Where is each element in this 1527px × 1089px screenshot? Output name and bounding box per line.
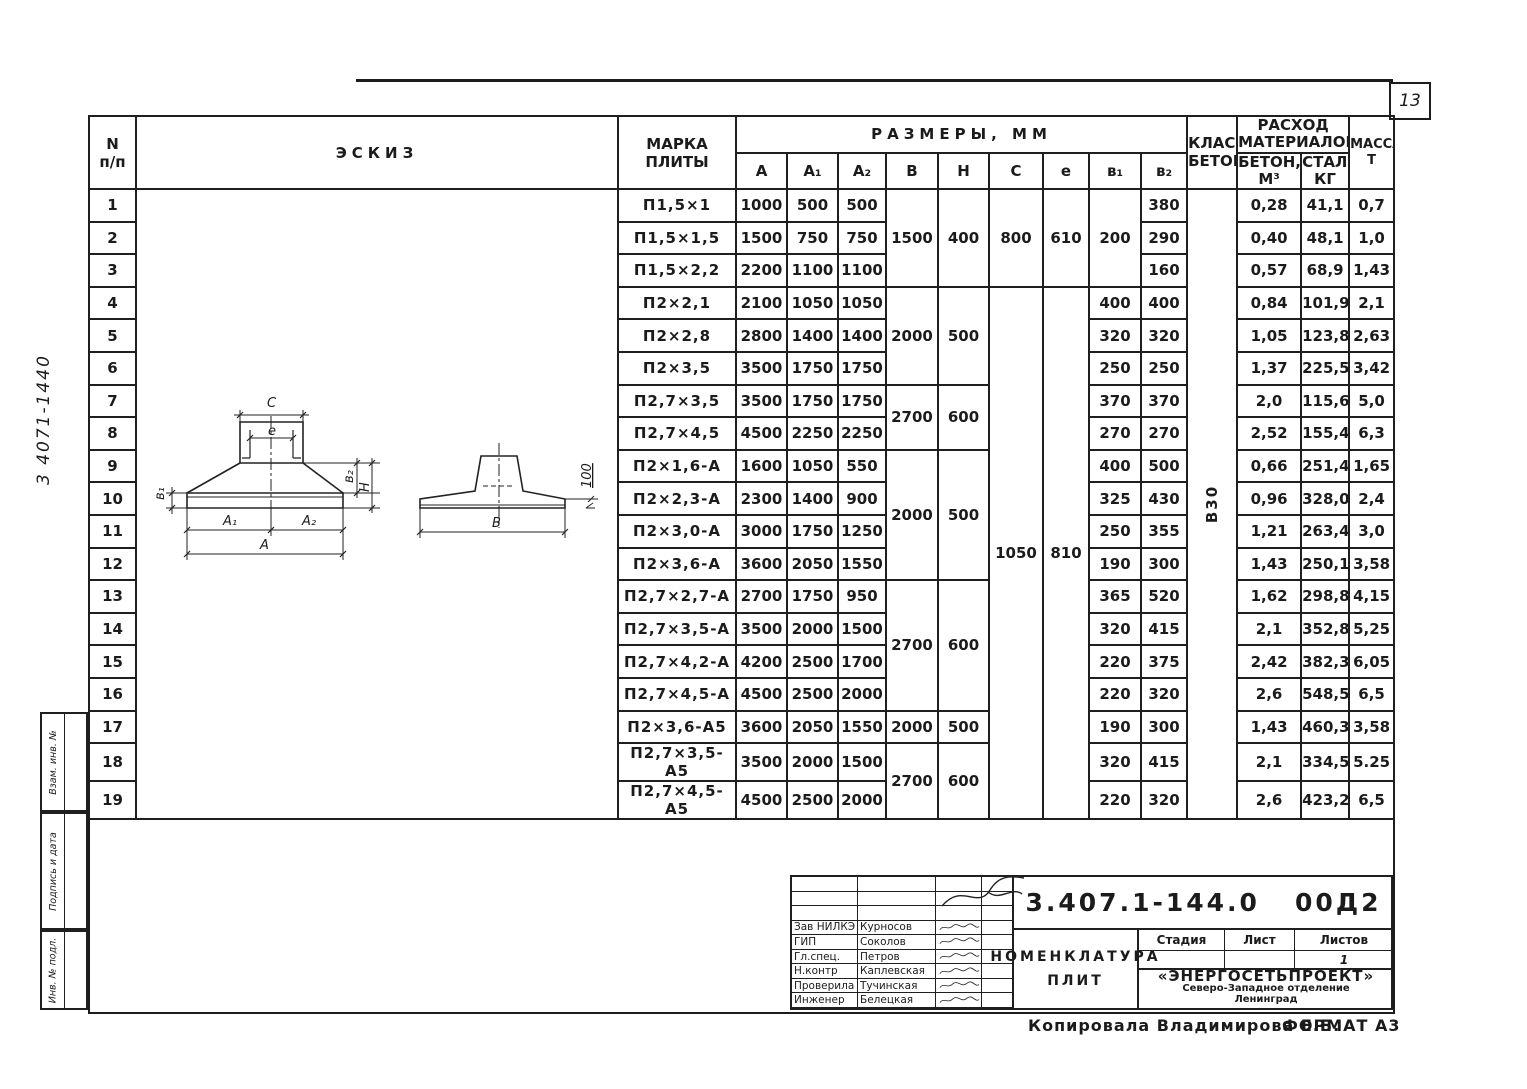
- row-13-steel: 298,8: [1301, 580, 1349, 613]
- row-12-dim-A1: 2050: [787, 548, 838, 581]
- dim-label-A1: A₁: [222, 514, 237, 529]
- row-15-steel: 382,3: [1301, 645, 1349, 678]
- row-8-mass: 6,3: [1349, 417, 1394, 450]
- mark-header-line1: МАРКА: [619, 135, 735, 153]
- row-13-mass: 4,15: [1349, 580, 1394, 613]
- row-19-number: 19: [89, 781, 136, 819]
- row-14-concrete: 2,1: [1237, 613, 1301, 646]
- row-4-dim-B2: 400: [1141, 287, 1187, 320]
- sheet-title-line1: НОМЕНКЛАТУРА: [990, 949, 1160, 965]
- row-9-mark: П2×1,6-А: [618, 450, 736, 483]
- row-14-number: 14: [89, 613, 136, 646]
- row-15-dim-A: 4200: [736, 645, 787, 678]
- row-18-number: 18: [89, 743, 136, 781]
- row-5-steel: 123,8: [1301, 319, 1349, 352]
- row-17-dim-A1: 2050: [787, 711, 838, 744]
- num-header-line1: N: [90, 135, 135, 153]
- row-4-dim-e: 810: [1043, 287, 1089, 819]
- row-3-dim-A2: 1100: [838, 254, 886, 287]
- signature-row-1: ГИПСоколов: [792, 935, 1012, 950]
- stamp-label: Подпись и дата: [48, 832, 59, 911]
- row-8-number: 8: [89, 417, 136, 450]
- row-16-number: 16: [89, 678, 136, 711]
- row-16-dim-B1: 220: [1089, 678, 1141, 711]
- stamp-label: Взам. инв. №: [48, 730, 59, 795]
- sheets-value: 1: [1295, 951, 1393, 968]
- org-city: Ленинград: [1234, 995, 1297, 1006]
- row-17-dim-B2: 300: [1141, 711, 1187, 744]
- row-9-concrete: 0,66: [1237, 450, 1301, 483]
- role-cell: Проверила: [792, 979, 858, 994]
- concrete-class-cell: В30: [1187, 189, 1237, 819]
- row-1-mark: П1,5×1: [618, 189, 736, 222]
- row-11-steel: 263,4: [1301, 515, 1349, 548]
- row-17-steel: 460,3: [1301, 711, 1349, 744]
- side-view-outline: [420, 456, 565, 508]
- row-2-steel: 48,1: [1301, 222, 1349, 255]
- row-4-dim-B1: 400: [1089, 287, 1141, 320]
- name-cell: Петров: [858, 950, 936, 965]
- row-8-mark: П2,7×4,5: [618, 417, 736, 450]
- col-header-concrete: БЕТОН, М³: [1237, 153, 1301, 190]
- row-5-mass: 2,63: [1349, 319, 1394, 352]
- margin-handwritten-code: 3 4071-1440: [34, 354, 54, 485]
- row-15-dim-B1: 220: [1089, 645, 1141, 678]
- row-5-number: 5: [89, 319, 136, 352]
- row-18-mass: 5.25: [1349, 743, 1394, 781]
- row-14-dim-B2: 415: [1141, 613, 1187, 646]
- row-9-dim-B1: 400: [1089, 450, 1141, 483]
- signature-row-4: ПроверилаТучинская: [792, 979, 1012, 994]
- row-16-dim-A: 4500: [736, 678, 787, 711]
- row-19-dim-A2: 2000: [838, 781, 886, 819]
- row-1-dim-H: 400: [938, 189, 989, 287]
- row-18-steel: 334,5: [1301, 743, 1349, 781]
- row-19-steel: 423,2: [1301, 781, 1349, 819]
- col-header-B: B: [886, 153, 938, 190]
- row-6-dim-A: 3500: [736, 352, 787, 385]
- col-header-H: H: [938, 153, 989, 190]
- row-1-number: 1: [89, 189, 136, 222]
- row-15-dim-A2: 1700: [838, 645, 886, 678]
- row-8-dim-A1: 2250: [787, 417, 838, 450]
- row-16-concrete: 2,6: [1237, 678, 1301, 711]
- name-cell: [858, 892, 936, 907]
- row-4-dim-C: 1050: [989, 287, 1043, 819]
- row-2-dim-A2: 750: [838, 222, 886, 255]
- row-16-dim-B2: 320: [1141, 678, 1187, 711]
- row-6-mass: 3,42: [1349, 352, 1394, 385]
- row-4-mass: 2,1: [1349, 287, 1394, 320]
- row-13-dim-A: 2700: [736, 580, 787, 613]
- date-cell: [982, 993, 1012, 1008]
- row-1-dim-B1: 200: [1089, 189, 1141, 287]
- row-7-dim-B: 2700: [886, 385, 938, 450]
- role-cell: Инженер: [792, 993, 858, 1008]
- row-7-mark: П2,7×3,5: [618, 385, 736, 418]
- name-cell: [858, 906, 936, 921]
- row-10-mass: 2,4: [1349, 482, 1394, 515]
- haunch-slopes: [187, 463, 343, 493]
- row-7-dim-A: 3500: [736, 385, 787, 418]
- row-8-dim-B2: 270: [1141, 417, 1187, 450]
- row-2-concrete: 0,40: [1237, 222, 1301, 255]
- row-15-dim-B2: 375: [1141, 645, 1187, 678]
- row-8-dim-A2: 2250: [838, 417, 886, 450]
- row-17-mark: П2×3,6-А5: [618, 711, 736, 744]
- row-7-dim-B1: 370: [1089, 385, 1141, 418]
- role-cell: Н.контр: [792, 964, 858, 979]
- mark-header-line2: ПЛИТЫ: [619, 153, 735, 171]
- row-6-dim-A1: 1750: [787, 352, 838, 385]
- row-9-dim-H: 500: [938, 450, 989, 580]
- materials-header-line2: МАТЕРИАЛОВ: [1238, 134, 1348, 151]
- col-header-sketch: ЭСКИЗ: [136, 116, 618, 189]
- row-14-dim-A2: 1500: [838, 613, 886, 646]
- row-14-steel: 352,8: [1301, 613, 1349, 646]
- row-10-concrete: 0,96: [1237, 482, 1301, 515]
- plate-sketch: C e в₁ в₂ H A₁ A₂ A B 100: [150, 388, 620, 588]
- row-4-dim-A1: 1050: [787, 287, 838, 320]
- row-11-dim-A: 3000: [736, 515, 787, 548]
- drawing-sheet: 13 3 4071-1440 Взам. инв. № Подпись и да…: [0, 0, 1527, 1089]
- date-cell: [982, 921, 1012, 936]
- row-19-mark: П2,7×4,5-А5: [618, 781, 736, 819]
- stamp-label-box: Взам. инв. №: [42, 714, 65, 810]
- row-17-dim-B1: 190: [1089, 711, 1141, 744]
- col-header-steel: СТАЛЬ, КГ: [1301, 153, 1349, 190]
- row-3-dim-A1: 1100: [787, 254, 838, 287]
- stamp-inv-podl: Инв. № подл.: [40, 930, 88, 1010]
- row-18-dim-H: 600: [938, 743, 989, 819]
- mass-header-line1: МАССА,: [1350, 137, 1393, 153]
- row-7-dim-A2: 1750: [838, 385, 886, 418]
- row-19-concrete: 2,6: [1237, 781, 1301, 819]
- row-12-dim-B2: 300: [1141, 548, 1187, 581]
- row-10-dim-B2: 430: [1141, 482, 1187, 515]
- row-18-dim-B1: 320: [1089, 743, 1141, 781]
- stamp-podpis-data: Подпись и дата: [40, 812, 88, 930]
- row-4-dim-A2: 1050: [838, 287, 886, 320]
- row-5-concrete: 1,05: [1237, 319, 1301, 352]
- signature-row-3: Н.контрКаплевская: [792, 964, 1012, 979]
- row-8-steel: 155,4: [1301, 417, 1349, 450]
- row-13-dim-B: 2700: [886, 580, 938, 710]
- row-17-concrete: 1,43: [1237, 711, 1301, 744]
- row-5-dim-B1: 320: [1089, 319, 1141, 352]
- class-header-line1: КЛАСС: [1188, 135, 1236, 152]
- row-10-number: 10: [89, 482, 136, 515]
- row-1-steel: 41,1: [1301, 189, 1349, 222]
- row-2-dim-B2: 290: [1141, 222, 1187, 255]
- row-1-dim-A2: 500: [838, 189, 886, 222]
- row-11-number: 11: [89, 515, 136, 548]
- row-3-dim-A: 2200: [736, 254, 787, 287]
- row-9-dim-A2: 550: [838, 450, 886, 483]
- row-9-number: 9: [89, 450, 136, 483]
- role-cell: [792, 877, 858, 892]
- signature-cell: [936, 993, 982, 1008]
- date-cell: [982, 935, 1012, 950]
- row-13-concrete: 1,62: [1237, 580, 1301, 613]
- row-18-dim-A2: 1500: [838, 743, 886, 781]
- row-7-concrete: 2,0: [1237, 385, 1301, 418]
- row-4-steel: 101,9: [1301, 287, 1349, 320]
- row-19-dim-A1: 2500: [787, 781, 838, 819]
- row-7-dim-B2: 370: [1141, 385, 1187, 418]
- sheets-label: Листов: [1295, 930, 1393, 950]
- row-11-dim-A1: 1750: [787, 515, 838, 548]
- row-13-dim-A1: 1750: [787, 580, 838, 613]
- row-12-dim-A2: 1550: [838, 548, 886, 581]
- row-1-dim-e: 610: [1043, 189, 1089, 287]
- signature-flourish: [938, 872, 1028, 912]
- row-12-number: 12: [89, 548, 136, 581]
- row-3-mass: 1,43: [1349, 254, 1394, 287]
- stamp-label: Инв. № подл.: [48, 937, 59, 1003]
- row-12-concrete: 1,43: [1237, 548, 1301, 581]
- row-17-mass: 3,58: [1349, 711, 1394, 744]
- row-1-mass: 0,7: [1349, 189, 1394, 222]
- dim-label-A2: A₂: [301, 514, 316, 529]
- title-block: Зав НИЛКЭКурносовГИПСоколовГл.спец.Петро…: [790, 875, 1393, 1010]
- row-11-mass: 3,0: [1349, 515, 1394, 548]
- doc-number: 3.407.1-144.0 00Д2: [1012, 877, 1393, 930]
- row-7-dim-A1: 1750: [787, 385, 838, 418]
- row-5-mark: П2×2,8: [618, 319, 736, 352]
- class-header-line2: БЕТОНА: [1188, 153, 1236, 170]
- row-1-concrete: 0,28: [1237, 189, 1301, 222]
- row-5-dim-A1: 1400: [787, 319, 838, 352]
- row-16-dim-A2: 2000: [838, 678, 886, 711]
- row-15-mass: 6,05: [1349, 645, 1394, 678]
- role-cell: Зав НИЛКЭ: [792, 921, 858, 936]
- dim-label-v1: в₁: [153, 487, 168, 500]
- row-16-steel: 548,5: [1301, 678, 1349, 711]
- name-cell: Белецкая: [858, 993, 936, 1008]
- role-cell: Гл.спец.: [792, 950, 858, 965]
- date-cell: [982, 979, 1012, 994]
- stage-sheet-block: Стадия Лист Листов 1 «ЭНЕРГОСЕТЬПРОЕКТ» …: [1137, 930, 1393, 1008]
- row-10-dim-B1: 325: [1089, 482, 1141, 515]
- row-5-dim-B2: 320: [1141, 319, 1187, 352]
- row-9-dim-B2: 500: [1141, 450, 1187, 483]
- row-9-mass: 1,65: [1349, 450, 1394, 483]
- col-header-mass: МАССА, Т: [1349, 116, 1394, 189]
- row-15-concrete: 2,42: [1237, 645, 1301, 678]
- row-13-dim-B1: 365: [1089, 580, 1141, 613]
- row-12-dim-B1: 190: [1089, 548, 1141, 581]
- sheet-title: НОМЕНКЛАТУРА ПЛИТ: [1012, 930, 1137, 1008]
- row-8-dim-A: 4500: [736, 417, 787, 450]
- signature-cell: [936, 935, 982, 950]
- row-19-dim-B2: 320: [1141, 781, 1187, 819]
- row-7-number: 7: [89, 385, 136, 418]
- row-2-number: 2: [89, 222, 136, 255]
- stamp-label-box: Подпись и дата: [42, 814, 65, 928]
- sheet-value: [1225, 951, 1295, 968]
- row-2-mass: 1,0: [1349, 222, 1394, 255]
- row-2-dim-A1: 750: [787, 222, 838, 255]
- row-11-dim-A2: 1250: [838, 515, 886, 548]
- page-number: 13: [1399, 91, 1421, 111]
- row-19-mass: 6,5: [1349, 781, 1394, 819]
- num-header-line2: п/п: [90, 153, 135, 171]
- row-17-dim-H: 500: [938, 711, 989, 744]
- concrete-header-line1: БЕТОН,: [1238, 154, 1300, 171]
- row-6-mark: П2×3,5: [618, 352, 736, 385]
- signature-cell: [936, 979, 982, 994]
- row-10-steel: 328,0: [1301, 482, 1349, 515]
- row-10-dim-A: 2300: [736, 482, 787, 515]
- col-header-dimensions: РАЗМЕРЫ, ММ: [736, 116, 1187, 153]
- stage-label: Стадия: [1139, 930, 1225, 950]
- row-18-dim-B2: 415: [1141, 743, 1187, 781]
- row-2-dim-A: 1500: [736, 222, 787, 255]
- row-18-dim-A1: 2000: [787, 743, 838, 781]
- row-18-dim-A: 3500: [736, 743, 787, 781]
- row-4-concrete: 0,84: [1237, 287, 1301, 320]
- steel-header-line2: КГ: [1302, 171, 1348, 188]
- row-19-dim-B1: 220: [1089, 781, 1141, 819]
- row-4-number: 4: [89, 287, 136, 320]
- name-cell: [858, 877, 936, 892]
- row-1-dim-A1: 500: [787, 189, 838, 222]
- row-13-dim-A2: 950: [838, 580, 886, 613]
- row-4-dim-B: 2000: [886, 287, 938, 385]
- col-header-A: A: [736, 153, 787, 190]
- org-name: «ЭНЕРГОСЕТЬПРОЕКТ»: [1158, 969, 1374, 985]
- row-14-dim-A: 3500: [736, 613, 787, 646]
- row-6-dim-B1: 250: [1089, 352, 1141, 385]
- row-14-mass: 5,25: [1349, 613, 1394, 646]
- row-6-dim-B2: 250: [1141, 352, 1187, 385]
- concrete-header-line2: М³: [1238, 171, 1300, 188]
- row-9-dim-B: 2000: [886, 450, 938, 580]
- role-cell: [792, 892, 858, 907]
- dim-label-H: H: [358, 482, 373, 492]
- col-header-v2: в₂: [1141, 153, 1187, 190]
- row-3-dim-B2: 160: [1141, 254, 1187, 287]
- row-7-mass: 5,0: [1349, 385, 1394, 418]
- row-6-concrete: 1,37: [1237, 352, 1301, 385]
- signature-row-0: Зав НИЛКЭКурносов: [792, 921, 1012, 936]
- role-cell: [792, 906, 858, 921]
- row-15-dim-A1: 2500: [787, 645, 838, 678]
- sheet-label: Лист: [1225, 930, 1295, 950]
- role-cell: ГИП: [792, 935, 858, 950]
- dim-label-A: A: [259, 538, 269, 553]
- signature-row-5: ИнженерБелецкая: [792, 993, 1012, 1008]
- row-18-concrete: 2,1: [1237, 743, 1301, 781]
- row-17-dim-A: 3600: [736, 711, 787, 744]
- stamp-label-box: Инв. № подл.: [42, 932, 65, 1008]
- row-6-number: 6: [89, 352, 136, 385]
- row-18-dim-B: 2700: [886, 743, 938, 819]
- col-header-A2: A₂: [838, 153, 886, 190]
- col-header-materials: РАСХОД МАТЕРИАЛОВ: [1237, 116, 1349, 153]
- row-8-concrete: 2,52: [1237, 417, 1301, 450]
- col-header-e: e: [1043, 153, 1089, 190]
- row-12-mark: П2×3,6-А: [618, 548, 736, 581]
- col-header-mark: МАРКА ПЛИТЫ: [618, 116, 736, 189]
- name-cell: Каплевская: [858, 964, 936, 979]
- stamp-vzam-inv: Взам. инв. №: [40, 712, 88, 812]
- format-note: ФОРМАТ А3: [1282, 1016, 1401, 1035]
- dim-label-C: C: [267, 396, 277, 411]
- row-19-dim-A: 4500: [736, 781, 787, 819]
- signature-row-2: Гл.спец.Петров: [792, 950, 1012, 965]
- mass-header-line2: Т: [1350, 153, 1393, 169]
- signature-cell: [936, 950, 982, 965]
- row-4-mark: П2×2,1: [618, 287, 736, 320]
- row-11-concrete: 1,21: [1237, 515, 1301, 548]
- row-10-dim-A1: 1400: [787, 482, 838, 515]
- row-4-dim-A: 2100: [736, 287, 787, 320]
- row-6-dim-A2: 1750: [838, 352, 886, 385]
- signature-cell: [936, 921, 982, 936]
- row-5-dim-A: 2800: [736, 319, 787, 352]
- row-3-mark: П1,5×2,2: [618, 254, 736, 287]
- page-number-box: 13: [1389, 82, 1431, 120]
- row-13-dim-H: 600: [938, 580, 989, 710]
- dim-label-v2: в₂: [342, 470, 357, 483]
- row-11-mark: П2×3,0-А: [618, 515, 736, 548]
- date-cell: [982, 964, 1012, 979]
- row-15-mark: П2,7×4,2-А: [618, 645, 736, 678]
- materials-header-line1: РАСХОД: [1238, 117, 1348, 134]
- row-7-dim-H: 600: [938, 385, 989, 450]
- top-border-rule: [356, 79, 1393, 82]
- col-header-concrete-class: КЛАСС БЕТОНА: [1187, 116, 1237, 189]
- row-17-dim-B: 2000: [886, 711, 938, 744]
- row-13-mark: П2,7×2,7-А: [618, 580, 736, 613]
- row-7-steel: 115,6: [1301, 385, 1349, 418]
- sheet-title-line2: ПЛИТ: [1047, 973, 1104, 989]
- row-3-steel: 68,9: [1301, 254, 1349, 287]
- slab-outline: [187, 493, 343, 508]
- row-13-dim-B2: 520: [1141, 580, 1187, 613]
- row-1-dim-B: 1500: [886, 189, 938, 287]
- dim-label-B: B: [492, 516, 501, 531]
- row-16-mass: 6,5: [1349, 678, 1394, 711]
- row-16-dim-A1: 2500: [787, 678, 838, 711]
- col-header-A1: A₁: [787, 153, 838, 190]
- row-12-steel: 250,1: [1301, 548, 1349, 581]
- row-10-dim-A2: 900: [838, 482, 886, 515]
- row-12-mass: 3,58: [1349, 548, 1394, 581]
- row-3-number: 3: [89, 254, 136, 287]
- row-14-mark: П2,7×3,5-А: [618, 613, 736, 646]
- row-9-dim-A1: 1050: [787, 450, 838, 483]
- row-14-dim-A1: 2000: [787, 613, 838, 646]
- row-18-mark: П2,7×3,5-А5: [618, 743, 736, 781]
- name-cell: Тучинская: [858, 979, 936, 994]
- organization: «ЭНЕРГОСЕТЬПРОЕКТ» Северо-Западное отдел…: [1139, 970, 1393, 1004]
- row-5-dim-A2: 1400: [838, 319, 886, 352]
- row-1-dim-A: 1000: [736, 189, 787, 222]
- concrete-class-value: В30: [1203, 485, 1221, 523]
- row-17-number: 17: [89, 711, 136, 744]
- row-12-dim-A: 3600: [736, 548, 787, 581]
- row-3-concrete: 0,57: [1237, 254, 1301, 287]
- row-6-steel: 225,5: [1301, 352, 1349, 385]
- row-9-dim-A: 1600: [736, 450, 787, 483]
- row-17-dim-A2: 1550: [838, 711, 886, 744]
- row-2-mark: П1,5×1,5: [618, 222, 736, 255]
- row-4-dim-H: 500: [938, 287, 989, 385]
- row-9-steel: 251,4: [1301, 450, 1349, 483]
